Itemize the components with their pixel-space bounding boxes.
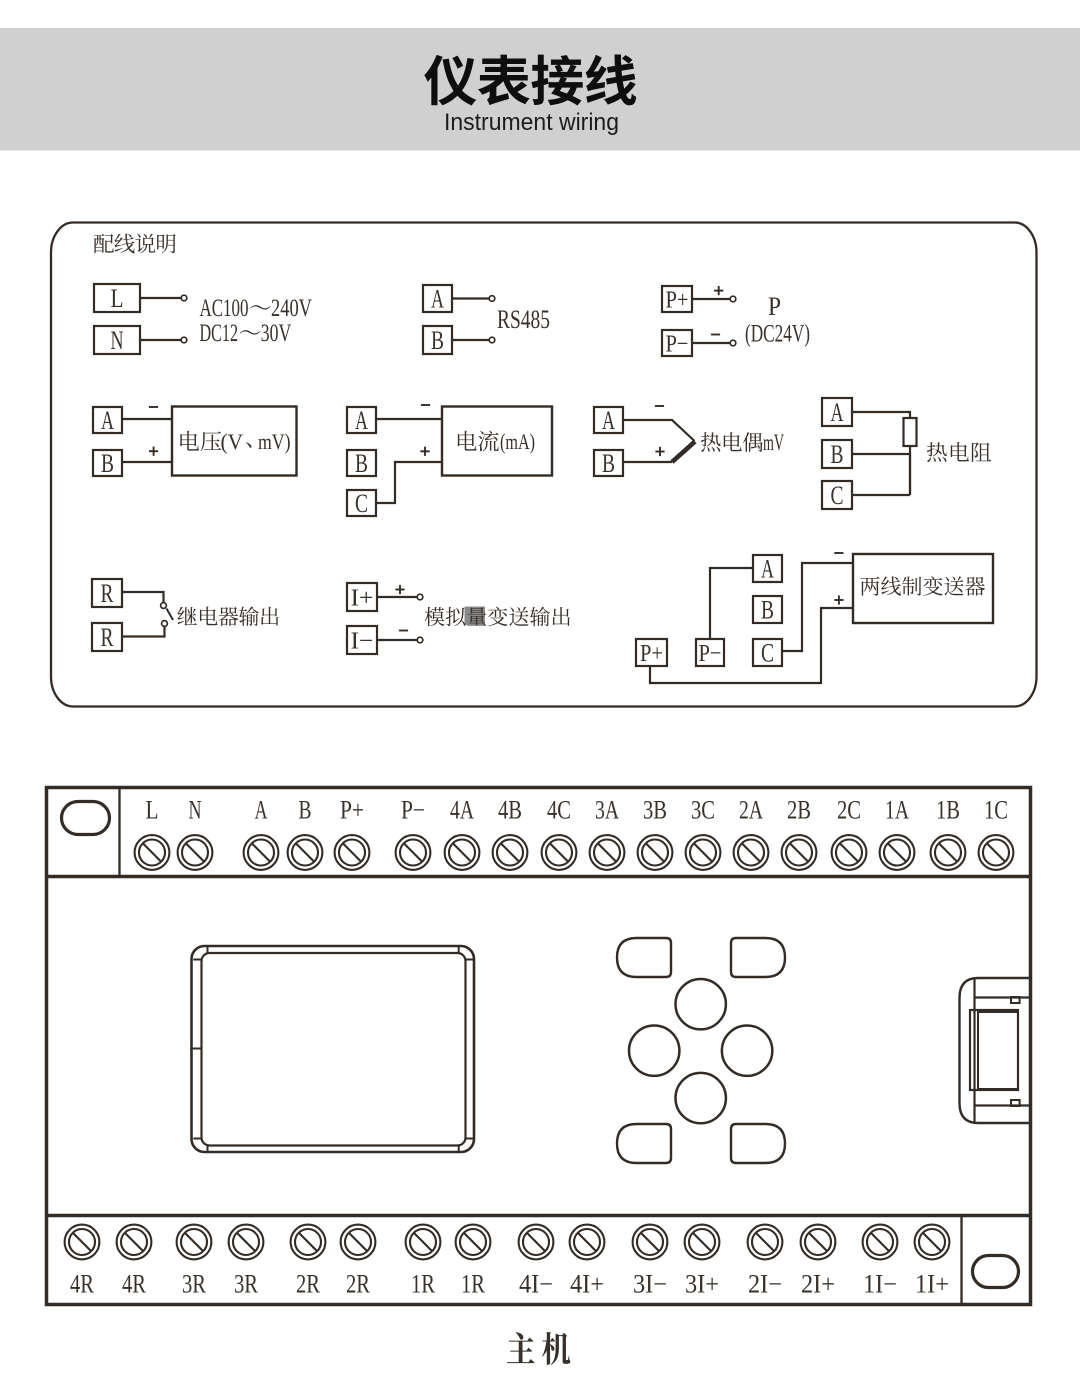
svg-text:2C: 2C [837, 796, 861, 825]
svg-text:A: A [602, 405, 615, 435]
svg-text:DC12: DC12 [200, 320, 239, 347]
svg-text:4B: 4B [498, 796, 522, 825]
svg-text:4C: 4C [547, 796, 571, 825]
svg-text:4I−: 4I− [519, 1270, 553, 1299]
svg-text:B: B [761, 595, 774, 625]
svg-text:RS485: RS485 [497, 305, 550, 334]
svg-text:2A: 2A [739, 796, 763, 825]
svg-text:B: B [299, 796, 312, 825]
svg-text:3R: 3R [234, 1270, 259, 1299]
svg-text:(mA): (mA) [500, 429, 535, 454]
svg-text:4R: 4R [122, 1270, 147, 1299]
svg-text:P+: P+ [640, 640, 663, 667]
svg-text:B: B [831, 439, 844, 469]
svg-text:N: N [111, 325, 124, 355]
svg-text:A: A [101, 405, 114, 435]
svg-text:P−: P− [699, 640, 722, 667]
svg-text:2R: 2R [296, 1270, 321, 1299]
svg-text:2B: 2B [787, 796, 811, 825]
svg-text:A: A [431, 284, 444, 314]
svg-text:1I+: 1I+ [915, 1270, 949, 1299]
svg-text:1B: 1B [936, 796, 960, 825]
svg-text:2I+: 2I+ [801, 1270, 835, 1299]
svg-text:I−: I− [351, 627, 374, 654]
svg-text:C: C [355, 488, 368, 518]
svg-text:30V: 30V [261, 320, 292, 347]
svg-text:1R: 1R [461, 1270, 486, 1299]
svg-text:I+: I+ [351, 584, 374, 611]
svg-text:R: R [101, 578, 114, 608]
svg-text:L: L [111, 283, 124, 313]
svg-text:4I+: 4I+ [570, 1270, 604, 1299]
svg-text:N: N [189, 796, 202, 825]
svg-text:P+: P+ [340, 796, 364, 825]
svg-text:2I−: 2I− [748, 1270, 782, 1299]
svg-text:mV: mV [763, 430, 784, 455]
svg-text:3I+: 3I+ [685, 1270, 719, 1299]
svg-text:P−: P− [401, 796, 425, 825]
svg-text:4R: 4R [70, 1270, 95, 1299]
svg-text:B: B [355, 448, 368, 478]
svg-text:3R: 3R [182, 1270, 207, 1299]
svg-text:A: A [761, 554, 774, 584]
svg-text:P: P [768, 292, 781, 321]
svg-text:(DC24V): (DC24V) [745, 321, 810, 348]
svg-text:3C: 3C [691, 796, 715, 825]
svg-text:240V: 240V [271, 295, 312, 322]
svg-text:2R: 2R [346, 1270, 371, 1299]
svg-text:P+: P+ [666, 286, 689, 313]
svg-text:mV): mV) [258, 429, 291, 454]
svg-text:B: B [602, 448, 615, 478]
svg-text:4A: 4A [450, 796, 474, 825]
svg-text:C: C [761, 638, 774, 668]
svg-text:3I−: 3I− [633, 1270, 667, 1299]
svg-text:A: A [355, 405, 368, 435]
svg-text:3A: 3A [595, 796, 619, 825]
svg-text:R: R [101, 622, 114, 652]
svg-text:1C: 1C [984, 796, 1008, 825]
svg-text:AC100: AC100 [200, 295, 249, 322]
svg-text:P−: P− [666, 330, 689, 357]
svg-text:B: B [101, 448, 114, 478]
svg-text:B: B [431, 325, 444, 355]
svg-text:Instrument wiring: Instrument wiring [444, 109, 619, 136]
svg-text:1I−: 1I− [863, 1270, 897, 1299]
svg-text:A: A [831, 397, 844, 427]
svg-text:3B: 3B [643, 796, 667, 825]
svg-text:(V: (V [221, 429, 244, 454]
svg-text:L: L [146, 796, 159, 825]
svg-text:1R: 1R [411, 1270, 436, 1299]
svg-text:1A: 1A [885, 796, 909, 825]
svg-text:C: C [831, 480, 844, 510]
svg-text:A: A [255, 796, 268, 825]
